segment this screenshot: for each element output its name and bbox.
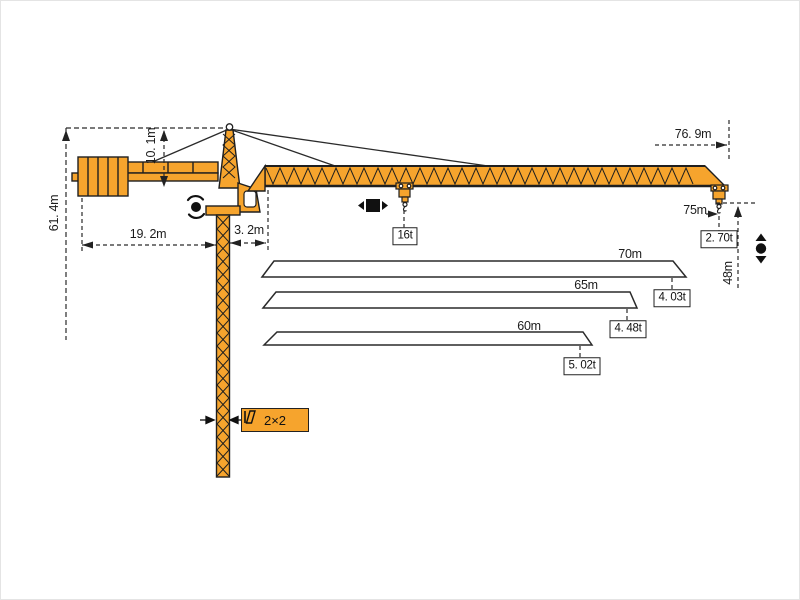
label-load-70m: 4. 03t	[654, 289, 691, 307]
jib-bar-65m	[263, 292, 637, 308]
label-max-load: 16t	[392, 227, 417, 245]
jib-root	[248, 166, 265, 191]
label-load-65m: 4. 48t	[610, 320, 647, 338]
peak-apex-pin	[226, 124, 232, 130]
cab-window	[244, 191, 256, 207]
label-jib-70m: 70m	[618, 248, 641, 261]
crane-diagram: 61. 4m 10. 1m 19. 2m 3. 2m 76. 9m 75m 48…	[0, 0, 800, 600]
mast-column	[217, 215, 230, 477]
label-jib-60m: 60m	[517, 320, 540, 333]
label-peak-height: 10. 1m	[145, 128, 158, 164]
mast-section-badge: 2×2	[241, 408, 309, 432]
trolley-hook-tip	[711, 185, 728, 213]
tie-bar-jib-2	[229, 129, 495, 167]
label-counterjib-radius: 19. 2m	[130, 228, 166, 241]
label-tip-load: 2. 70t	[701, 230, 738, 248]
hook-tip	[717, 205, 721, 209]
mast-section-label: 2×2	[264, 414, 286, 427]
label-max-radius: 75m	[683, 204, 706, 217]
tower-mast	[206, 206, 240, 477]
mast-section-icon	[242, 409, 257, 425]
trolley-travel-icon	[358, 199, 388, 212]
hoist-icon	[756, 234, 767, 264]
hook-mid	[403, 203, 407, 207]
label-jib-65m: 65m	[574, 279, 597, 292]
label-total-height: 61. 4m	[48, 195, 61, 231]
slewing-platform	[206, 206, 240, 215]
label-hook-height: 48m	[722, 261, 735, 284]
main-jib	[248, 166, 725, 191]
label-jib-span: 76. 9m	[675, 128, 711, 141]
label-load-60m: 5. 02t	[564, 357, 601, 375]
trolley-hook-mid	[396, 183, 413, 211]
jib-bar-60m	[264, 332, 592, 345]
counterweight-block	[78, 157, 128, 196]
jib-body	[265, 166, 725, 186]
slewing-icon	[188, 196, 204, 218]
tie-bar-counterjib	[150, 129, 229, 163]
jib-bar-70m	[262, 261, 686, 277]
tower-peak	[219, 124, 240, 188]
tie-bar-jib-1	[229, 129, 338, 167]
label-root-offset: 3. 2m	[234, 224, 264, 237]
